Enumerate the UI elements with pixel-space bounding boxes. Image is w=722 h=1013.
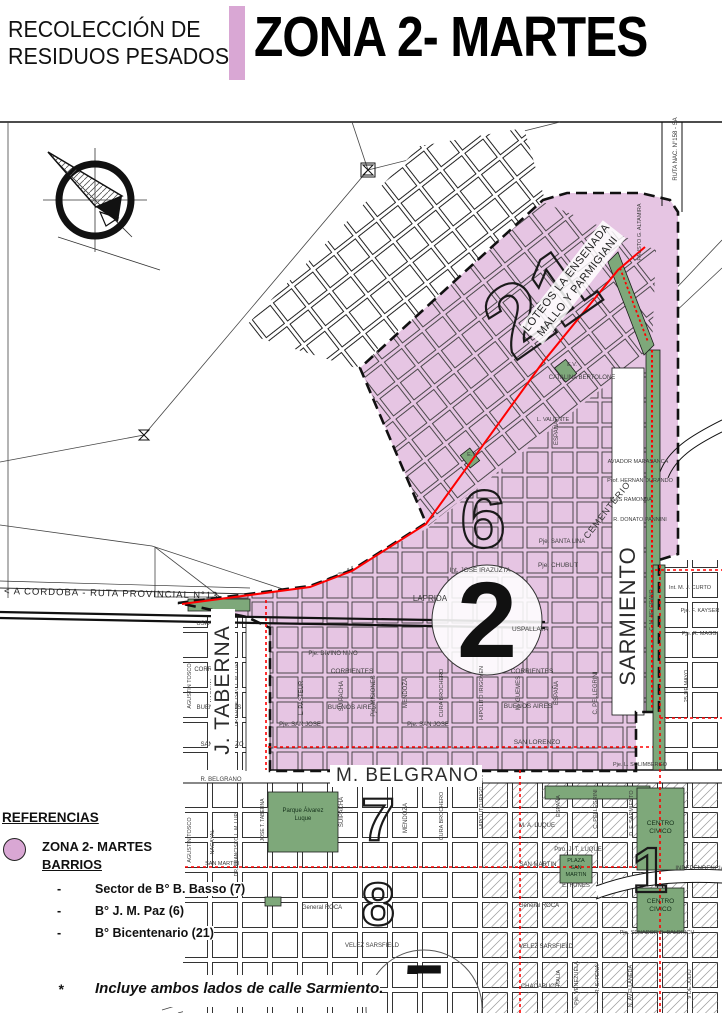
legend-zone-label: ZONA 2- MARTES bbox=[42, 839, 152, 854]
street-label: Pje. SENADOR D. BALDRICH bbox=[620, 930, 695, 936]
zone-number-2: 2 bbox=[457, 559, 517, 680]
header: RECOLECCIÓN DE RESIDUOS PESADOS ZONA 2- … bbox=[0, 0, 722, 118]
footnote-text: Incluye ambos lados de calle Sarmiento. bbox=[95, 980, 383, 997]
street-label: SAN MARTIN bbox=[520, 862, 557, 868]
street-label: Pje. SAN JOSE bbox=[279, 722, 321, 728]
street-label: Pje. F. KAYSER bbox=[681, 608, 720, 614]
street-label: D. F. SARMIENTO bbox=[629, 790, 635, 836]
footnote-star: * bbox=[58, 981, 63, 997]
legend-item-paz: B° J. M. Paz (6) bbox=[95, 904, 184, 918]
street-label: CORRIENTES bbox=[331, 668, 374, 675]
street-label: VELEZ SARSFIELD bbox=[345, 943, 400, 949]
street-label: E.V. bbox=[467, 452, 477, 458]
legend-barrios-label: BARRIOS bbox=[42, 857, 102, 872]
street-label: AGUSTIN TOSCO bbox=[187, 817, 193, 863]
street-label: HIPOLITO IRIGOYEN bbox=[479, 666, 485, 720]
street-label: Pje. L. SOLIMBERGO bbox=[613, 762, 668, 768]
taberna-street-band bbox=[246, 617, 270, 771]
street-label: C. M. BELGRANO bbox=[649, 589, 655, 630]
centro-civico-line1: CENTRO bbox=[637, 820, 684, 828]
legend-item-dash: - bbox=[57, 926, 61, 940]
street-label: CHACABUCO bbox=[521, 984, 560, 990]
centro-civico-south-label: CENTRO CIVICO bbox=[637, 898, 684, 914]
street-label: ESPAÑA bbox=[553, 681, 560, 705]
street-label: Pje. MISIONES bbox=[371, 675, 377, 716]
legend-item-dash: - bbox=[57, 882, 61, 896]
program-title-line1: RECOLECCIÓN DE bbox=[8, 16, 229, 43]
street-label: C. PELLEGRINI bbox=[593, 789, 599, 829]
street-label: Int. JOSE IRAZUZTA bbox=[450, 567, 512, 574]
street-label: USPALLATA bbox=[512, 626, 549, 633]
street-label: INDEPENDENCIA bbox=[675, 866, 722, 872]
street-label: Pje. SAN JOSE bbox=[407, 722, 449, 728]
street-label: C. PELLEGRINI bbox=[593, 671, 599, 714]
belgrano-street-label: M. BELGRANO bbox=[330, 765, 482, 787]
street-label: CURA BROCHERO bbox=[439, 791, 445, 840]
street-label: R. BELGRANO bbox=[200, 777, 241, 783]
legend-item-bicentenario: B° Bicentenario (21) bbox=[95, 926, 214, 940]
legend-item-dash: - bbox=[57, 904, 61, 918]
street-label: AVIADOR MARASANCA bbox=[608, 459, 669, 465]
street-label: SUIPACHA bbox=[339, 681, 345, 711]
street-label: Ptro. J. T. LUQUE bbox=[554, 847, 602, 853]
street-label: CORRIENTES bbox=[511, 668, 554, 675]
street-label: L. PASTEUR bbox=[299, 680, 305, 715]
plaza-name-line2: SAN bbox=[560, 865, 592, 872]
street-label: NACAYAL bbox=[210, 830, 216, 855]
street-label: JOSE T. TABERNA bbox=[260, 798, 266, 841]
street-label: E. FUNES bbox=[562, 883, 590, 889]
street-label: BUENOS AIRES bbox=[504, 703, 553, 710]
street-label: R. S. PENA bbox=[595, 964, 601, 993]
zone-number-6: 6 bbox=[460, 474, 506, 565]
street-label: SAN MARTIN bbox=[205, 861, 239, 867]
centro-civico-line2: CIVICO bbox=[637, 828, 684, 836]
zone-color-swatch bbox=[3, 838, 26, 861]
plaza-name-label: PLAZA SAN MARTIN bbox=[560, 858, 592, 879]
street-label: R. DONATO PANNINI bbox=[613, 517, 667, 523]
park-name-line2: Luque bbox=[268, 816, 338, 824]
street-label: Pje. SANTA LINA bbox=[539, 539, 585, 545]
footnote-area: * Incluye ambos lados de calle Sarmiento… bbox=[20, 975, 380, 1007]
street-label: 25 DE MAYO bbox=[684, 669, 690, 702]
street-label: Int. M. J. CURTO bbox=[669, 585, 712, 591]
street-label: 9 DE JULIO bbox=[687, 969, 693, 999]
street-label: ESPAÑA bbox=[555, 795, 562, 817]
street-label: ESPAÑA bbox=[553, 421, 560, 445]
sarmiento-street-label: SARMIENTO bbox=[615, 538, 641, 694]
zone-number-8: 8 bbox=[361, 871, 394, 938]
legend-title: REFERENCIAS bbox=[2, 810, 99, 825]
street-label: SUIPACHA bbox=[339, 797, 345, 827]
street-label: MENDOZA bbox=[403, 678, 409, 708]
street-label: CURA BROCHERO bbox=[439, 668, 445, 717]
zone-number-7: 7 bbox=[361, 786, 394, 853]
street-label: BUENOS AIRES bbox=[328, 704, 377, 711]
park-name-line1: Parque Álvarez bbox=[268, 808, 338, 816]
street-label: SAN LORENZO bbox=[514, 739, 561, 746]
centro-civico-line1: CENTRO bbox=[637, 898, 684, 906]
street-label: VELEZ SARSFIELD bbox=[519, 944, 574, 950]
street-label: Pje. DIVINO NINO bbox=[308, 651, 358, 657]
ruta-nac-label: RUTA NAC. N°158 - SA bbox=[673, 101, 679, 197]
program-title: RECOLECCIÓN DE RESIDUOS PESADOS bbox=[8, 16, 229, 70]
street-label: CATALINA BERTOLONE bbox=[549, 375, 616, 381]
street-label: General ROCA bbox=[519, 903, 559, 909]
legend-item-basso: Sector de B° B. Basso (7) bbox=[95, 882, 245, 896]
street-label: MENDOZA bbox=[403, 803, 409, 833]
street-label: General ROCA bbox=[302, 905, 342, 911]
street-label: Pje. VENEZUELA bbox=[574, 961, 580, 1005]
plaza-name-line3: MARTIN bbox=[560, 872, 592, 879]
plaza-name-line1: PLAZA bbox=[560, 858, 592, 865]
street-label: Pje. R. MAGGI bbox=[682, 631, 719, 637]
street-label: AGUSTIN TOSCO bbox=[187, 663, 193, 709]
page: { "header": { "program_line1": "RECOLECC… bbox=[0, 0, 722, 1013]
street-label: Prof. HERNAN DURANDO bbox=[607, 478, 673, 484]
page-title: ZONA 2- MARTES bbox=[254, 4, 647, 70]
street-label: N. AVELLANEDA bbox=[628, 964, 634, 1007]
taberna-street-label: J. TABERNA bbox=[211, 609, 235, 771]
street-label: E.V. bbox=[567, 362, 577, 368]
zone-number-1: 1 bbox=[632, 834, 668, 906]
street-label: ITALIA bbox=[556, 969, 562, 986]
street-label: M. GUEMES bbox=[516, 676, 522, 710]
street-label: LAPRIDA bbox=[413, 594, 448, 603]
header-accent-bar bbox=[229, 6, 245, 80]
street-label: FAUSTO G. ALTAMIRA bbox=[637, 203, 643, 260]
centro-civico-north-label: CENTRO CIVICO bbox=[637, 820, 684, 836]
park-name-label: Parque Álvarez Luque bbox=[268, 808, 338, 823]
street-label: Pje. CHUBUT bbox=[538, 562, 578, 569]
street-label: M. A. LUQUE bbox=[519, 823, 555, 829]
centro-civico-line2: CIVICO bbox=[637, 906, 684, 914]
program-title-line2: RESIDUOS PESADOS bbox=[8, 43, 229, 70]
